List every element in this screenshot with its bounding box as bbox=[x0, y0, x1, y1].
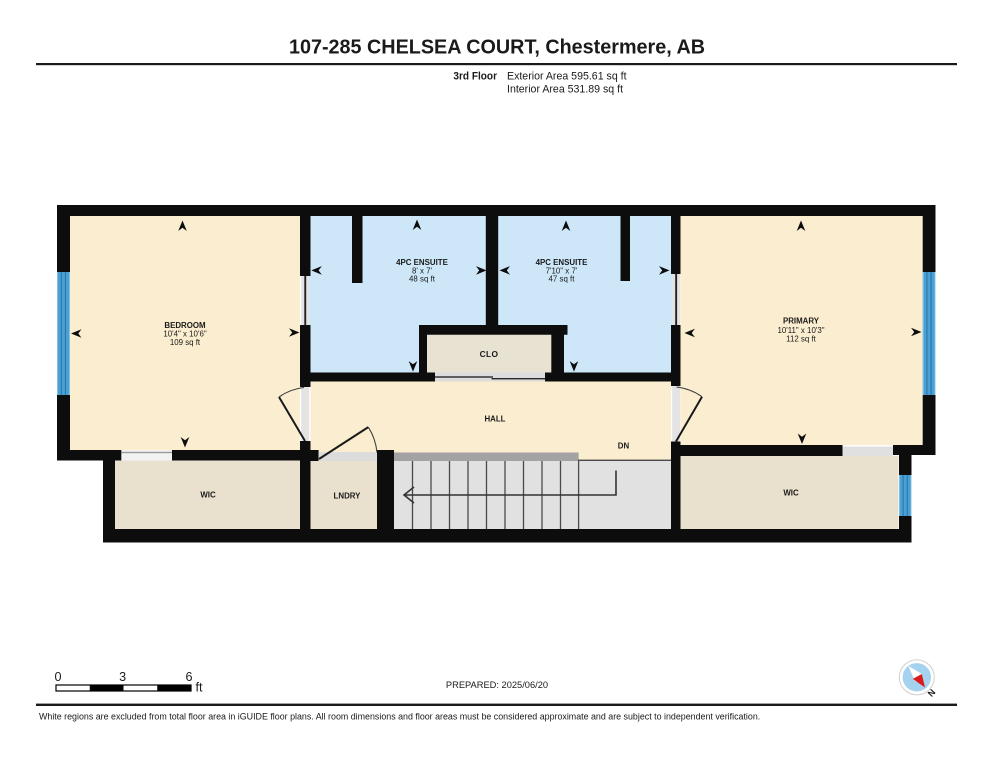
svg-text:CLO: CLO bbox=[480, 349, 499, 359]
svg-text:N: N bbox=[926, 687, 938, 699]
svg-text:6: 6 bbox=[185, 670, 192, 684]
svg-text:DN: DN bbox=[618, 442, 630, 451]
svg-text:LNDRY: LNDRY bbox=[334, 492, 362, 501]
svg-text:Interior Area 531.89 sq ft: Interior Area 531.89 sq ft bbox=[507, 84, 623, 96]
svg-text:WIC: WIC bbox=[783, 489, 799, 498]
svg-text:3: 3 bbox=[119, 670, 126, 684]
svg-text:3rd Floor: 3rd Floor bbox=[453, 71, 497, 82]
svg-text:ft: ft bbox=[196, 681, 203, 695]
svg-text:0: 0 bbox=[54, 670, 61, 684]
svg-text:48 sq ft: 48 sq ft bbox=[409, 275, 436, 284]
svg-text:WIC: WIC bbox=[200, 491, 216, 500]
svg-text:47 sq ft: 47 sq ft bbox=[549, 275, 576, 284]
svg-text:10'11" x 10'3": 10'11" x 10'3" bbox=[777, 326, 824, 335]
svg-text:HALL: HALL bbox=[484, 415, 505, 424]
svg-text:PREPARED: 2025/06/20: PREPARED: 2025/06/20 bbox=[446, 680, 548, 690]
svg-text:109 sq ft: 109 sq ft bbox=[170, 338, 201, 347]
svg-text:112 sq ft: 112 sq ft bbox=[786, 335, 816, 344]
svg-text:Exterior Area 595.61 sq ft: Exterior Area 595.61 sq ft bbox=[507, 70, 627, 82]
svg-text:PRIMARY: PRIMARY bbox=[783, 317, 820, 326]
svg-text:107-285 CHELSEA COURT, Chester: 107-285 CHELSEA COURT, Chestermere, AB bbox=[289, 36, 705, 58]
svg-text:White regions are excluded fro: White regions are excluded from total fl… bbox=[39, 712, 760, 722]
